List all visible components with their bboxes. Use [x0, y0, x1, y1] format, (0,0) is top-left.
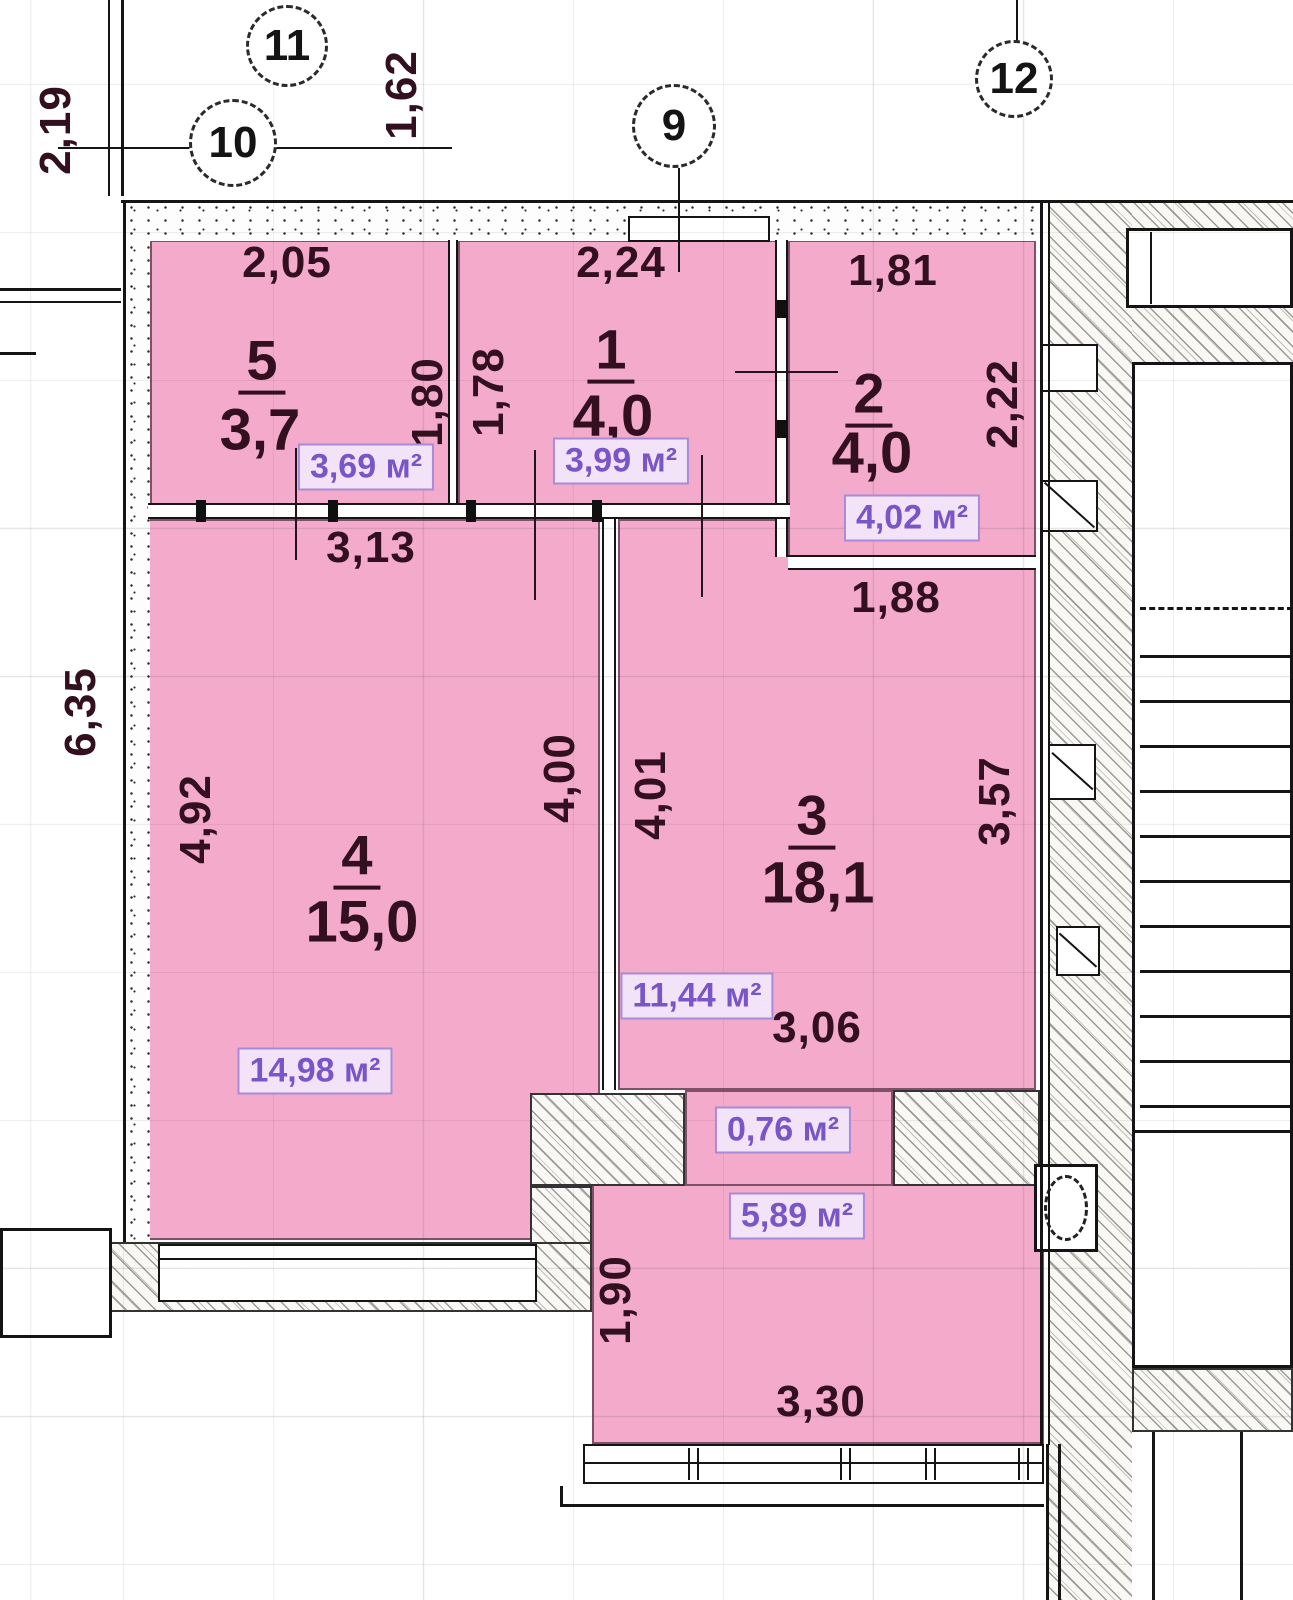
axis-9-label: 9: [662, 101, 686, 151]
dim-room1-left: 1,78: [464, 347, 514, 437]
corridor-line: [1152, 1432, 1155, 1600]
partition-r4-r3: [602, 519, 616, 1090]
dim-room1-top: 2,24: [576, 238, 666, 288]
corridor-bottom-right: [1152, 1432, 1240, 1600]
room-5-area-label: 3,69 м²: [298, 444, 434, 491]
wall-hatch-bottomright: [1132, 1368, 1293, 1432]
room-1-area-label: 3,99 м²: [553, 438, 689, 485]
window-mullion: [925, 1448, 927, 1480]
axis-marker-10: 10: [189, 99, 277, 187]
wall-line-left: [123, 200, 126, 1242]
dim-room5-right: 1,80: [403, 357, 453, 447]
wall-step-left: [0, 1228, 112, 1338]
door-jamb: [777, 300, 788, 318]
corridor-line: [1240, 1432, 1243, 1600]
wall-line: [121, 0, 124, 196]
door-jamb: [196, 500, 206, 522]
dim-room2-right: 2,22: [978, 359, 1028, 449]
hallway-area-label: 0,76 м²: [715, 1107, 851, 1154]
floor-plan: 11 10 9 12 2,19 1,62 6,35 2,05 1,80 2,24…: [0, 0, 1293, 1600]
wall-line-top: [121, 200, 1293, 203]
room-1-number: 1: [587, 321, 634, 384]
window-mullion: [840, 1448, 842, 1480]
wall-line: [0, 288, 121, 291]
wall-line: [0, 352, 36, 355]
axis-10-label: 10: [209, 118, 258, 168]
toilet-fixture-box: [1034, 1164, 1098, 1252]
room-3-number: 3: [788, 787, 835, 850]
window-left-bottom: [158, 1244, 537, 1302]
witness-line: [295, 448, 297, 560]
room-4-number: 4: [333, 827, 380, 890]
dim-room4-top: 3,13: [326, 523, 416, 573]
wall-hatch-c: [893, 1090, 1040, 1186]
dim-2-19: 2,19: [31, 85, 81, 175]
wall-line: [0, 301, 121, 303]
stair-treads: [1140, 655, 1293, 1110]
wall-hatch-a: [530, 1093, 685, 1186]
axis-marker-9: 9: [632, 84, 716, 168]
elevator-door-line: [1150, 232, 1152, 304]
axis-12-label: 12: [990, 54, 1039, 104]
axis-9-leader: [678, 168, 680, 272]
room-5-number: 5: [238, 332, 285, 395]
dim-room4-right: 4,00: [535, 733, 585, 823]
window-mullion: [849, 1448, 851, 1480]
wall-hatch-right: [1048, 203, 1132, 1600]
door-jamb: [777, 420, 788, 438]
room-2-area: 4,0: [832, 420, 913, 487]
window-mullion: [1027, 1448, 1029, 1480]
window-mullion: [934, 1448, 936, 1480]
balcony-side: [1058, 1444, 1061, 1600]
dim-room3-right: 3,57: [970, 756, 1020, 846]
window-bottom: [583, 1444, 1044, 1484]
stair-cut-line: [1140, 607, 1293, 610]
axis-11-label: 11: [264, 21, 311, 71]
door-jamb: [592, 500, 602, 522]
room-2-area-label: 4,02 м²: [844, 495, 980, 542]
dim-room2-top: 1,81: [848, 246, 938, 296]
bathroom-area-label: 5,89 м²: [729, 1193, 865, 1240]
balcony-rail: [560, 1504, 1044, 1507]
dim-bath-left: 1,90: [591, 1255, 641, 1345]
window-glass-line: [585, 1462, 1042, 1464]
dim-room3-bottom: 3,06: [772, 1003, 862, 1053]
dim-6-35: 6,35: [56, 667, 106, 757]
wall-top: [123, 201, 1060, 241]
wall-r2-bottom: [788, 555, 1036, 570]
wall-line: [108, 0, 110, 196]
room-3-area: 18,1: [762, 850, 875, 917]
toilet-bowl-icon: [1044, 1175, 1088, 1241]
window-glass-line: [160, 1258, 535, 1260]
room-2-number: 2: [845, 365, 892, 428]
wall-line-right: [1040, 200, 1043, 1445]
stair-landing-line: [1132, 1130, 1293, 1133]
room-4-area: 15,0: [306, 889, 419, 956]
witness-line: [735, 371, 838, 373]
axis-marker-12: 12: [975, 40, 1053, 118]
dim-bath-bottom: 3,30: [776, 1377, 866, 1427]
dim-1-62: 1,62: [377, 50, 427, 140]
axis-12-leader: [1016, 0, 1018, 42]
wall-r1-bottom: [448, 503, 790, 519]
dim-room3-left: 4,01: [626, 750, 676, 840]
window-mullion: [697, 1448, 699, 1480]
axis-marker-11: 11: [246, 5, 328, 87]
room-3-area-label: 11,44 м²: [620, 973, 773, 1020]
balcony-side: [1046, 1444, 1049, 1600]
room-5-area: 3,7: [220, 397, 301, 464]
witness-line: [701, 455, 703, 597]
window-mullion: [688, 1448, 690, 1480]
dim-room5-top: 2,05: [242, 238, 332, 288]
door-jamb: [328, 500, 338, 522]
balcony-rail: [560, 1486, 563, 1506]
wall-r5-bottom: [148, 503, 452, 519]
wall-left: [123, 241, 150, 1242]
window-mullion: [1018, 1448, 1020, 1480]
dim-room3-top: 1,88: [851, 573, 941, 623]
vent-box-2: [1048, 744, 1096, 800]
room-4-area-label: 14,98 м²: [237, 1048, 392, 1095]
vent-box-3: [1056, 926, 1100, 976]
dim-room4-left: 4,92: [171, 774, 221, 864]
door-jamb: [466, 500, 476, 522]
wall-hatch-b: [530, 1186, 592, 1244]
wall-line-right-inner: [1048, 200, 1050, 1445]
witness-line: [534, 450, 536, 600]
